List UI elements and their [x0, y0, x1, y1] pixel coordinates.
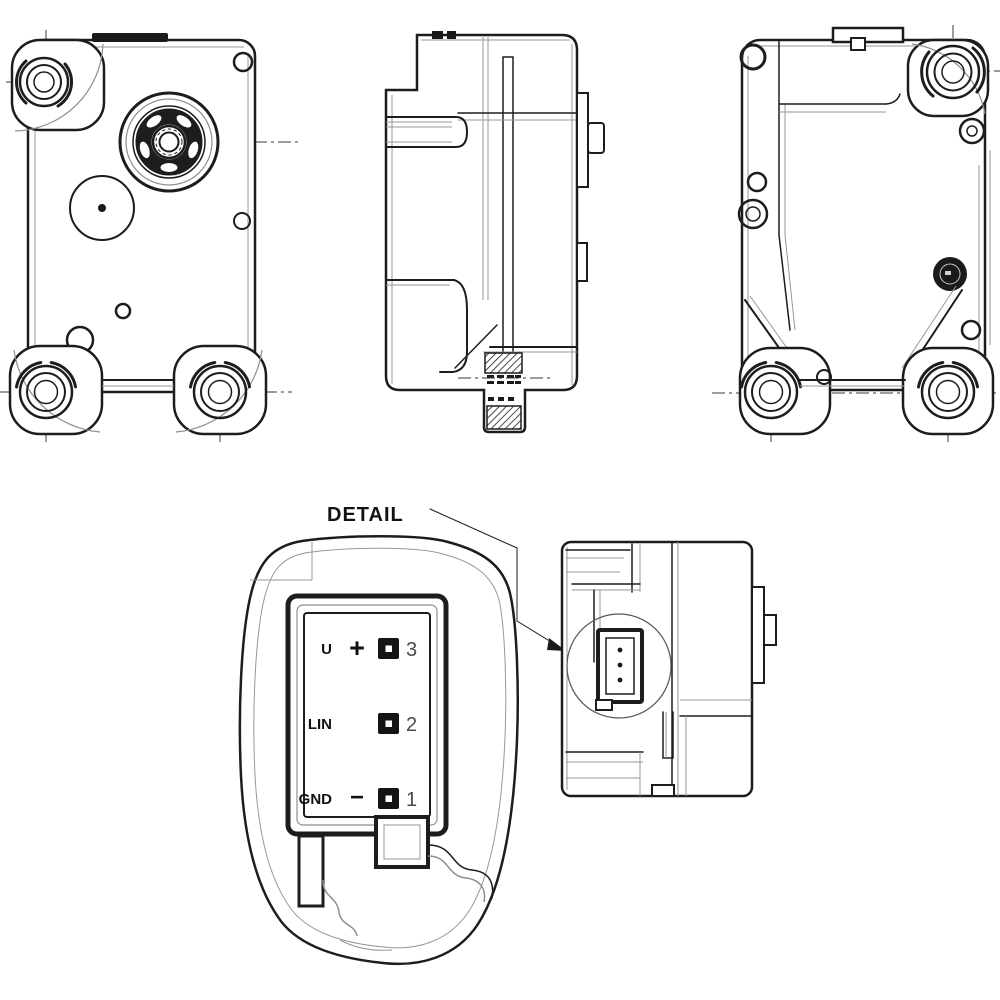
side-view-connector — [562, 542, 776, 796]
top-tab-rear — [833, 28, 903, 42]
side-view — [386, 31, 604, 432]
mounting-ear-top-right — [908, 40, 988, 116]
top-clip-side-2 — [447, 31, 456, 39]
pin-1-number: 1 — [406, 789, 417, 811]
rear-view — [712, 25, 1000, 442]
three-pin-socket — [596, 630, 642, 710]
key-bar — [299, 836, 323, 906]
side-tab-lower — [577, 243, 587, 281]
pin-3-symbol: + — [349, 633, 365, 663]
technical-drawing-page: DETAIL U + 3 LI — [0, 0, 1000, 1000]
mounting-ear-rear-bottom-right — [903, 348, 993, 434]
housing-side — [386, 35, 577, 432]
mounting-ear-top-left — [12, 40, 104, 131]
actuator-technical-drawing: DETAIL U + 3 LI — [0, 0, 1000, 1000]
pin-3-number: 3 — [406, 639, 417, 661]
pin-2-contact-icon — [378, 713, 399, 734]
housing-side-small — [562, 542, 752, 796]
side-tab-small-bump — [764, 615, 776, 645]
front-view — [0, 30, 300, 442]
pin-2-number: 2 — [406, 714, 417, 736]
pin-3-contact-icon — [378, 638, 399, 659]
side-tab-bump — [588, 123, 604, 153]
pin-3-label: U — [321, 641, 332, 658]
bottom-notch — [652, 785, 674, 796]
side-tab — [577, 93, 588, 187]
pin-1-symbol: − — [350, 784, 364, 811]
mounting-ear-bottom-left — [10, 346, 102, 434]
top-clip — [92, 33, 168, 42]
top-clip-side — [432, 31, 443, 39]
mounting-ear-rear-bottom-left — [740, 348, 830, 434]
pin-1-contact-icon — [378, 788, 399, 809]
mounting-ear-bottom-right — [174, 346, 266, 434]
detail-label: DETAIL — [327, 504, 404, 526]
connector-pinout-detail: U + 3 LIN 2 GND − 1 — [240, 536, 518, 964]
pin-2-label: LIN — [308, 716, 332, 733]
date-stamp — [933, 257, 967, 291]
pin-1-label: GND — [299, 791, 333, 808]
square-hole — [851, 38, 865, 50]
side-tab-small — [752, 587, 764, 683]
